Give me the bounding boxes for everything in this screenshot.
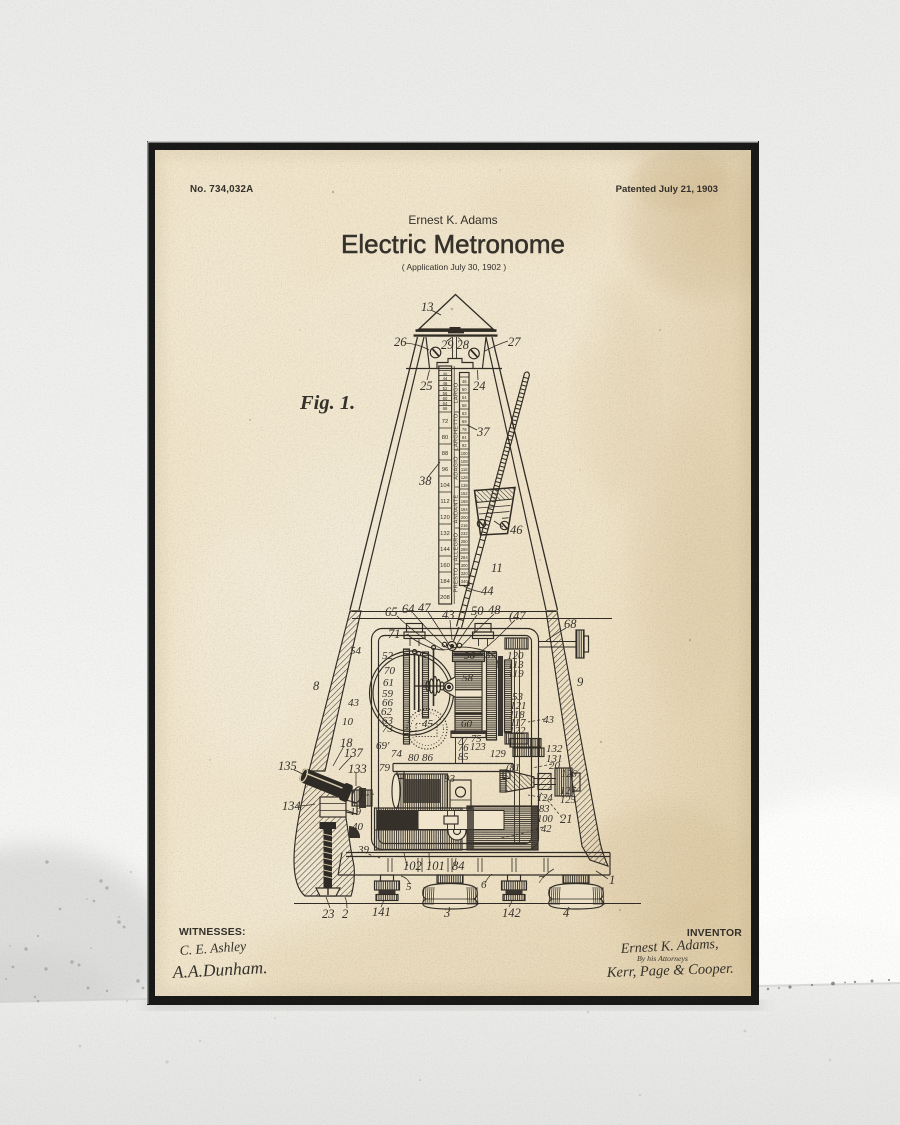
svg-text:116: 116 (461, 467, 468, 472)
svg-text:44: 44 (481, 584, 494, 598)
svg-text:ANDANTE: ANDANTE (454, 495, 460, 524)
svg-text:Fig. 1.: Fig. 1. (299, 392, 355, 414)
svg-text:PRESTO: PRESTO (454, 567, 460, 592)
svg-text:134: 134 (282, 799, 301, 813)
svg-text:126: 126 (461, 475, 469, 480)
svg-text:39: 39 (357, 844, 370, 856)
svg-text:20: 20 (549, 760, 561, 772)
svg-text:48: 48 (488, 603, 501, 617)
svg-text:152: 152 (461, 491, 469, 496)
svg-text:108: 108 (461, 459, 469, 464)
svg-text:104: 104 (440, 483, 450, 489)
svg-text:184: 184 (440, 579, 450, 585)
svg-text:142: 142 (502, 906, 521, 920)
svg-text:29: 29 (441, 338, 454, 352)
svg-text:100: 100 (461, 451, 469, 456)
svg-text:69': 69' (376, 740, 390, 752)
svg-text:102: 102 (403, 859, 422, 873)
svg-text:ADAGIO: ADAGIO (454, 456, 460, 480)
svg-text:119: 119 (508, 668, 524, 680)
svg-text:216: 216 (461, 523, 469, 528)
svg-text:7: 7 (538, 874, 544, 886)
svg-text:144: 144 (440, 547, 450, 553)
svg-text:No. 734,032A: No. 734,032A (190, 184, 253, 195)
svg-text:93: 93 (444, 773, 456, 785)
svg-text:76: 76 (462, 427, 467, 432)
svg-text:208: 208 (440, 595, 450, 601)
svg-text:Electric Metronome: Electric Metronome (341, 229, 565, 259)
svg-text:24: 24 (473, 379, 486, 393)
svg-text:4: 4 (563, 906, 569, 920)
svg-text:LARGO: LARGO (454, 382, 460, 403)
svg-text:73: 73 (382, 723, 394, 735)
svg-text:135: 135 (278, 759, 297, 773)
svg-text:92: 92 (462, 443, 467, 448)
svg-text:54: 54 (350, 645, 362, 657)
svg-text:284: 284 (461, 555, 469, 560)
svg-text:38: 38 (418, 474, 432, 488)
svg-text:( Application July 30, 1902 ): ( Application July 30, 1902 ) (402, 262, 507, 272)
svg-text:80: 80 (408, 752, 420, 764)
svg-text:57: 57 (485, 649, 497, 661)
svg-text:50: 50 (462, 387, 467, 392)
svg-text:43: 43 (442, 608, 455, 622)
svg-text:250: 250 (461, 539, 469, 544)
svg-text:122: 122 (509, 725, 526, 737)
svg-text:86: 86 (422, 752, 434, 764)
svg-text:58: 58 (462, 672, 474, 684)
svg-text:74: 74 (391, 748, 403, 760)
svg-text:46: 46 (510, 523, 523, 537)
svg-text:84: 84 (462, 435, 467, 440)
svg-text:168: 168 (461, 499, 469, 504)
svg-text:46: 46 (462, 379, 467, 384)
svg-text:69: 69 (462, 419, 467, 424)
svg-text:37: 37 (476, 425, 490, 439)
svg-text:68: 68 (443, 406, 448, 411)
svg-text:3: 3 (443, 906, 450, 920)
svg-text:84: 84 (452, 859, 465, 873)
svg-text:340: 340 (461, 579, 469, 584)
svg-text:63: 63 (462, 411, 467, 416)
svg-text:26: 26 (394, 335, 407, 349)
svg-text:132: 132 (440, 531, 450, 537)
svg-text:124: 124 (537, 793, 554, 804)
svg-text:70: 70 (384, 665, 396, 677)
svg-text:232: 232 (461, 531, 469, 536)
svg-text:43: 43 (543, 714, 555, 726)
svg-text:138: 138 (461, 483, 469, 488)
svg-text:184: 184 (461, 507, 469, 512)
svg-text:6: 6 (481, 879, 487, 891)
svg-text:64: 64 (402, 602, 415, 616)
svg-text:Patented July 21, 1903: Patented July 21, 1903 (616, 184, 718, 195)
svg-text:125: 125 (560, 795, 576, 806)
svg-text:28: 28 (457, 338, 470, 352)
svg-text:300: 300 (461, 563, 469, 568)
svg-text:160: 160 (440, 563, 450, 569)
svg-text:137: 137 (344, 746, 364, 760)
svg-text:9: 9 (577, 675, 584, 689)
svg-text:23: 23 (322, 907, 335, 921)
svg-text:36: 36 (463, 650, 476, 662)
svg-text:47: 47 (418, 601, 431, 615)
svg-text:11: 11 (491, 561, 503, 575)
svg-text:(81: (81 (506, 763, 520, 774)
svg-text:ALLEGRO: ALLEGRO (454, 532, 460, 561)
svg-text:45: 45 (422, 718, 434, 730)
svg-text:27: 27 (508, 335, 521, 349)
svg-text:101: 101 (426, 859, 445, 873)
svg-text:19: 19 (350, 806, 362, 818)
svg-text:42: 42 (541, 824, 552, 835)
svg-text:8: 8 (313, 679, 320, 693)
svg-text:85: 85 (458, 752, 469, 763)
svg-text:60: 60 (461, 718, 473, 730)
svg-text:43: 43 (348, 697, 360, 709)
svg-text:65: 65 (385, 605, 398, 619)
svg-text:21: 21 (560, 812, 573, 826)
svg-text:40: 40 (352, 821, 364, 833)
svg-text:68: 68 (564, 617, 577, 631)
svg-text:120: 120 (440, 515, 450, 521)
svg-text:80: 80 (442, 435, 448, 441)
svg-text:2: 2 (342, 907, 348, 921)
svg-text:79: 79 (379, 762, 391, 774)
svg-text:25: 25 (420, 379, 433, 393)
svg-text:(47: (47 (509, 609, 526, 623)
svg-text:126: 126 (561, 769, 578, 780)
svg-text:50: 50 (471, 604, 484, 618)
svg-text:96: 96 (442, 467, 448, 473)
svg-text:133: 133 (348, 762, 367, 776)
svg-text:72: 72 (442, 419, 448, 425)
svg-text:123: 123 (470, 742, 486, 753)
svg-text:129: 129 (490, 749, 507, 760)
svg-text:88: 88 (442, 451, 448, 457)
svg-text:71: 71 (388, 627, 401, 641)
svg-text:112: 112 (440, 499, 449, 505)
svg-text:54: 54 (462, 395, 467, 400)
svg-text:320: 320 (461, 571, 469, 576)
svg-text:13: 13 (421, 300, 434, 314)
svg-text:10: 10 (342, 716, 354, 728)
svg-text:1: 1 (609, 873, 615, 887)
svg-text:52: 52 (382, 650, 394, 662)
svg-text:141: 141 (372, 905, 391, 919)
svg-text:LARGHETTO: LARGHETTO (454, 413, 460, 450)
svg-text:WITNESSES:: WITNESSES: (179, 927, 246, 938)
svg-text:200: 200 (461, 515, 469, 520)
svg-text:Ernest K. Adams: Ernest K. Adams (408, 213, 497, 227)
svg-text:268: 268 (461, 547, 469, 552)
svg-text:58: 58 (462, 403, 467, 408)
svg-text:5: 5 (406, 881, 412, 893)
